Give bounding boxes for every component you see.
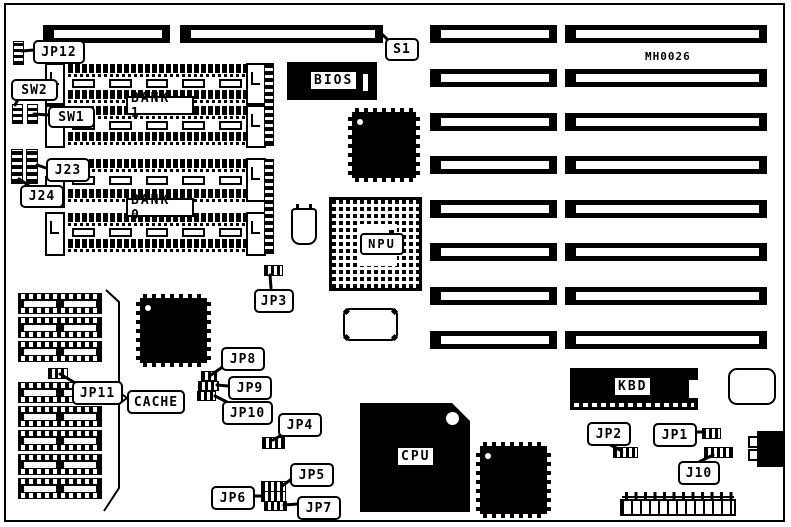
callout-j24: J24: [20, 185, 64, 208]
callout-jp2: JP2: [587, 422, 631, 446]
callout-jp8: JP8: [221, 347, 265, 371]
callout-j23: J23: [46, 158, 90, 182]
callout-s1: S1: [385, 38, 419, 61]
callout-sw2: SW2: [11, 79, 58, 101]
motherboard-diagram: MH0026 BANK 1 BANK 0 BIOS: [0, 0, 791, 527]
callout-jp9: JP9: [228, 376, 272, 400]
callout-jp4: JP4: [278, 413, 322, 437]
callout-jp12: JP12: [33, 40, 85, 64]
callout-jp5: JP5: [290, 463, 334, 487]
callout-jp3: JP3: [254, 289, 294, 313]
callout-jp10: JP10: [222, 401, 273, 425]
callout-jp6: JP6: [211, 486, 255, 510]
callout-cache: CACHE: [127, 390, 185, 414]
callout-sw1: SW1: [48, 106, 95, 128]
callout-tails: [0, 0, 791, 527]
callout-j10: J10: [678, 461, 720, 485]
callout-jp1: JP1: [653, 423, 697, 447]
callout-jp7: JP7: [297, 496, 341, 520]
callout-jp11: JP11: [72, 381, 123, 405]
